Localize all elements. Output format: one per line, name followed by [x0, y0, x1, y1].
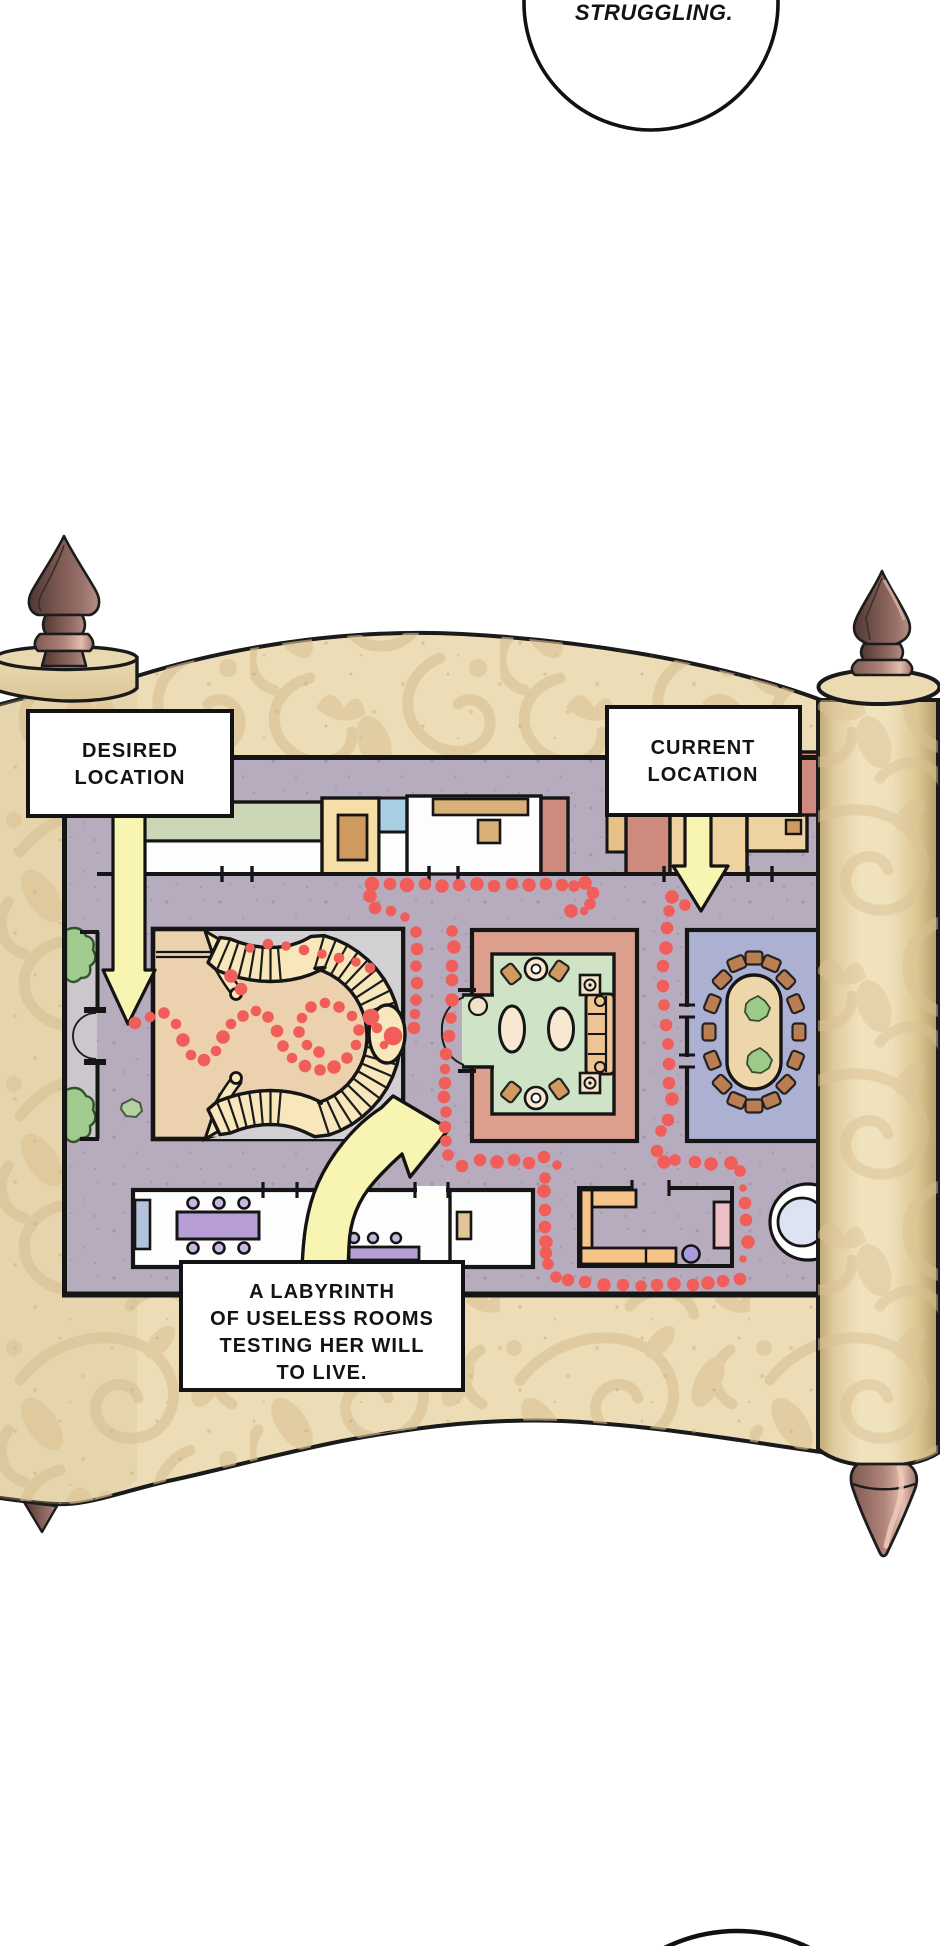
svg-text:A LABYRINTH: A LABYRINTH: [249, 1281, 395, 1303]
svg-text:LOCATION: LOCATION: [75, 767, 186, 789]
svg-text:LOCATION: LOCATION: [648, 764, 759, 786]
svg-text:CURRENT: CURRENT: [651, 737, 756, 759]
svg-text:OF USELESS ROOMS: OF USELESS ROOMS: [210, 1308, 434, 1330]
svg-text:TO LIVE.: TO LIVE.: [277, 1362, 368, 1384]
svg-text:STRUGGLING.: STRUGGLING.: [575, 0, 733, 25]
svg-text:DESIRED: DESIRED: [82, 740, 178, 762]
svg-text:TESTING HER WILL: TESTING HER WILL: [220, 1335, 425, 1357]
